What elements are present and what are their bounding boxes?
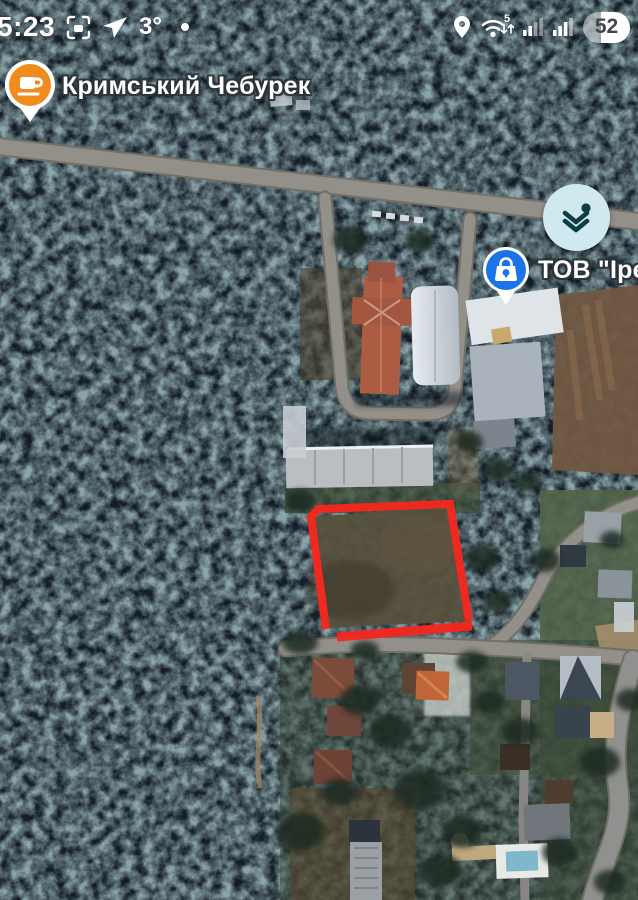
shopping-pin-icon[interactable] (480, 245, 532, 307)
layers-icon (559, 200, 595, 236)
poi-cafe[interactable]: Кримський Чебурек (2, 58, 310, 124)
poi-cafe-label[interactable]: Кримський Чебурек (62, 72, 310, 101)
poi-shop-label[interactable]: ТОВ "Іре (538, 256, 638, 285)
satellite-map[interactable] (0, 0, 638, 900)
cafe-pin-icon[interactable] (2, 58, 58, 124)
poi-shop[interactable]: ТОВ "Іре (480, 245, 638, 307)
layers-button[interactable] (543, 184, 610, 251)
phone-screen: 5:23 3° 5 (0, 0, 638, 900)
